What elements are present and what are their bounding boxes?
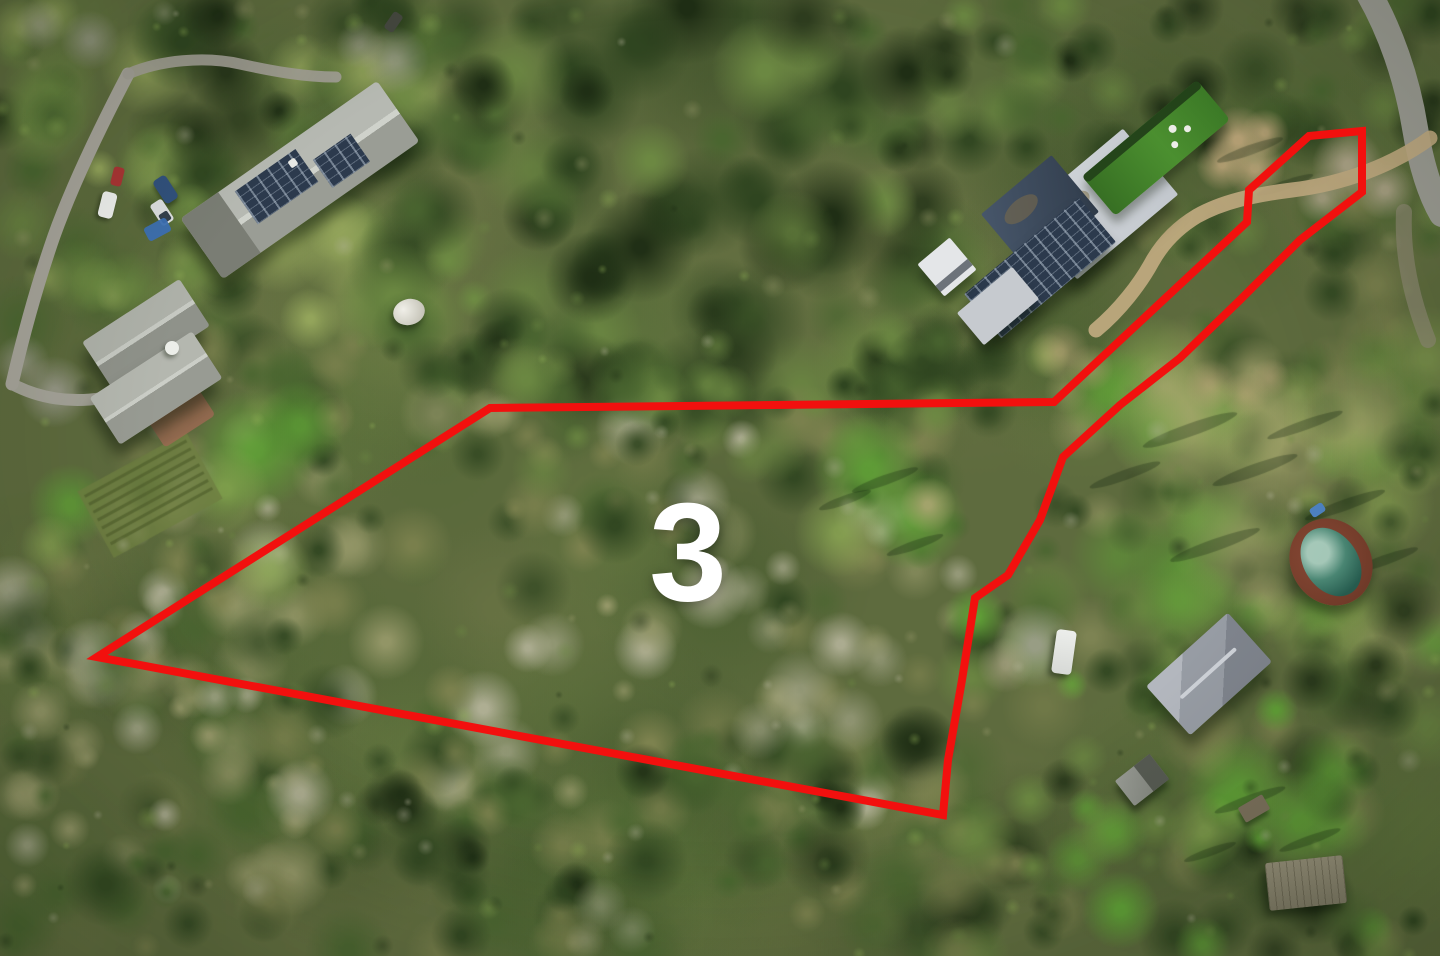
parcel-number-label: 3 (649, 482, 727, 622)
aerial-photo: 3 (0, 0, 1440, 956)
parcel-boundary (97, 131, 1362, 815)
